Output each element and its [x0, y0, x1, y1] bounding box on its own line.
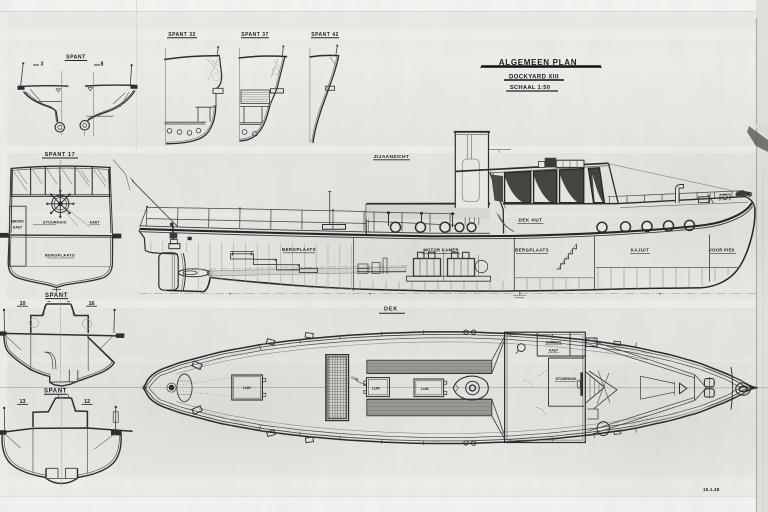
svg-text:SPANT: SPANT — [44, 389, 67, 395]
svg-text:8: 8 — [101, 62, 104, 68]
svg-text:KAST: KAST — [13, 226, 23, 230]
svg-text:KOMBUIS: KOMBUIS — [546, 341, 562, 345]
svg-text:LUIK: LUIK — [421, 387, 429, 391]
svg-text:LUIK: LUIK — [372, 387, 380, 391]
svg-text:KAJUIT: KAJUIT — [631, 248, 649, 253]
svg-text:BERGPLAATS: BERGPLAATS — [282, 247, 316, 252]
svg-text:BERGPLAATS: BERGPLAATS — [45, 254, 75, 258]
svg-text:ZIJAANZICHT: ZIJAANZICHT — [374, 154, 409, 160]
svg-text:3: 3 — [41, 62, 44, 68]
svg-text:LUIK: LUIK — [243, 386, 251, 390]
svg-text:STUURHUIS: STUURHUIS — [43, 221, 67, 225]
svg-text:15.1.48: 15.1.48 — [703, 487, 720, 492]
svg-text:KAST: KAST — [90, 221, 101, 225]
svg-text:SPANT 17: SPANT 17 — [45, 152, 76, 158]
svg-text:MOTOR KAMER: MOTOR KAMER — [423, 247, 458, 252]
svg-text:SCHAAL 1:50: SCHAAL 1:50 — [510, 85, 551, 91]
svg-text:KAST: KAST — [549, 349, 558, 353]
svg-text:BROOD: BROOD — [11, 220, 24, 224]
svg-text:STUURHUIS: STUURHUIS — [556, 377, 578, 381]
svg-text:BERGPLAATS: BERGPLAATS — [515, 248, 549, 253]
svg-text:SPANT: SPANT — [66, 55, 86, 61]
svg-text:DEK HUT: DEK HUT — [519, 218, 543, 223]
svg-text:DEK: DEK — [384, 307, 398, 313]
svg-text:VOOR PIEK: VOOR PIEK — [709, 247, 735, 252]
